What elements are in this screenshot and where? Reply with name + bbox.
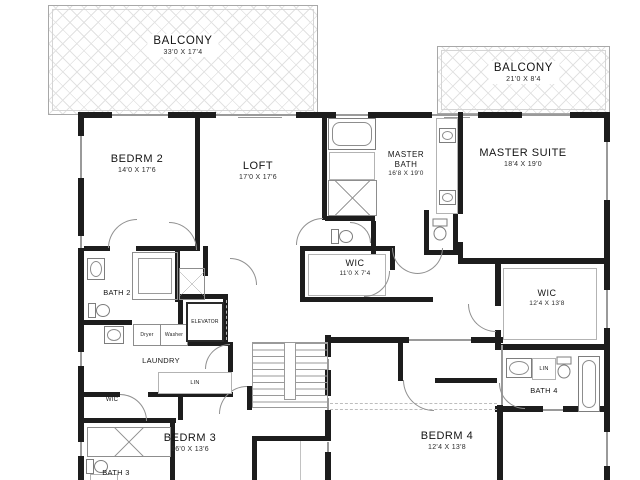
wall bbox=[495, 258, 501, 306]
bathtub bbox=[578, 356, 600, 412]
room-name: BEDRM 4 bbox=[421, 430, 473, 443]
room-dims: 21'0 X 8'4 bbox=[494, 76, 553, 83]
room-name: BALCONY bbox=[494, 62, 553, 74]
linen-label: LIN bbox=[190, 380, 199, 386]
room-dims: 16'8 X 19'0 bbox=[380, 170, 432, 178]
stair-rail bbox=[284, 342, 296, 400]
shower bbox=[328, 180, 377, 216]
room-label-wic-small: WIC bbox=[106, 397, 118, 403]
window bbox=[606, 142, 608, 200]
wall bbox=[322, 112, 327, 220]
wall bbox=[84, 246, 110, 251]
wall bbox=[495, 344, 605, 350]
room-name: WIC bbox=[339, 258, 370, 269]
wall bbox=[300, 297, 433, 302]
linen-closet: LIN bbox=[532, 358, 556, 380]
wall bbox=[300, 246, 305, 302]
window bbox=[432, 114, 478, 116]
room-name: BEDRM 3 bbox=[164, 432, 216, 445]
wall bbox=[471, 337, 503, 343]
room-label-bedrm4: BEDRM 4 12'4 X 13'8 bbox=[421, 430, 473, 453]
ceiling-break-line bbox=[330, 409, 497, 410]
sink bbox=[439, 128, 456, 143]
room-name: MASTER BATH bbox=[380, 150, 432, 169]
balcony-top-right: BALCONY 21'0 X 8'4 bbox=[437, 46, 610, 114]
washer-label: Washer bbox=[165, 332, 183, 338]
door-arc bbox=[468, 304, 496, 332]
room-dims: 12'4 X 13'8 bbox=[529, 300, 564, 308]
bathtub bbox=[328, 118, 376, 150]
room-dims: 33'0 X 17'4 bbox=[153, 49, 212, 56]
linen-label: LIN bbox=[539, 366, 548, 372]
door-arc bbox=[108, 219, 137, 248]
room-name: LOFT bbox=[239, 160, 277, 173]
wall-line bbox=[300, 441, 301, 480]
room-label-balcony-left: BALCONY 33'0 X 17'4 bbox=[147, 34, 218, 57]
window bbox=[409, 339, 471, 341]
elevator-label: ELEVATOR bbox=[191, 319, 218, 325]
balcony-top-left: BALCONY 33'0 X 17'4 bbox=[48, 5, 318, 115]
window bbox=[80, 352, 82, 366]
window bbox=[216, 114, 296, 116]
toilet bbox=[88, 302, 110, 317]
room-label-bath4: BATH 4 bbox=[530, 386, 558, 395]
window bbox=[522, 114, 570, 116]
window bbox=[80, 236, 82, 248]
wall bbox=[252, 436, 331, 441]
room-dims: 11'0 X 7'4 bbox=[339, 270, 370, 278]
closet-outline bbox=[329, 152, 375, 180]
sink bbox=[439, 190, 456, 205]
window bbox=[112, 114, 168, 116]
room-dims: 17'0 X 17'6 bbox=[239, 174, 277, 182]
window bbox=[606, 290, 608, 328]
room-label-loft: LOFT 17'0 X 17'6 bbox=[239, 160, 277, 183]
sink bbox=[87, 258, 105, 280]
shower bbox=[132, 252, 178, 300]
wall bbox=[300, 246, 395, 251]
wall bbox=[195, 112, 200, 251]
toilet bbox=[558, 357, 573, 379]
wall bbox=[325, 216, 375, 221]
linen-closet: LIN bbox=[158, 372, 232, 394]
shower bbox=[179, 268, 205, 300]
door-arc bbox=[350, 222, 371, 243]
window bbox=[543, 409, 563, 411]
wall bbox=[325, 410, 331, 440]
wall bbox=[497, 405, 503, 480]
wall bbox=[604, 112, 610, 142]
room-label-bath2: BATH 2 bbox=[103, 288, 131, 297]
wall bbox=[168, 112, 216, 118]
room-name: MASTER SUITE bbox=[479, 147, 566, 160]
elevator-car: ELEVATOR bbox=[186, 302, 224, 342]
room-name: BEDRM 2 bbox=[111, 153, 163, 166]
sink bbox=[506, 358, 532, 378]
wall bbox=[478, 112, 522, 118]
wall bbox=[78, 112, 84, 136]
door-arc bbox=[120, 394, 147, 421]
window bbox=[80, 136, 82, 178]
wall bbox=[78, 456, 84, 480]
shower bbox=[87, 427, 171, 457]
wall bbox=[78, 178, 84, 236]
window bbox=[336, 114, 368, 116]
room-label-bath3: BATH 3 bbox=[102, 468, 130, 477]
floor-plan: BALCONY 33'0 X 17'4 BALCONY 21'0 X 8'4 bbox=[0, 0, 640, 480]
room-dims: 12'4 X 13'8 bbox=[421, 444, 473, 452]
room-label-wic-right: WIC 12'4 X 13'8 bbox=[529, 288, 564, 308]
wall bbox=[460, 258, 495, 264]
wall bbox=[84, 320, 132, 325]
toilet bbox=[434, 219, 449, 241]
door-arc bbox=[417, 248, 443, 274]
window bbox=[606, 432, 608, 466]
door-arc bbox=[403, 380, 434, 411]
wall bbox=[458, 112, 463, 214]
wall bbox=[495, 258, 605, 264]
room-name: WIC bbox=[529, 288, 564, 299]
wall bbox=[78, 248, 84, 352]
door-arc bbox=[205, 344, 230, 369]
window bbox=[80, 442, 82, 456]
room-dims: 16'0 X 13'6 bbox=[164, 446, 216, 454]
wall bbox=[252, 441, 257, 480]
dryer-label: Dryer bbox=[140, 332, 153, 338]
door-arc bbox=[392, 248, 418, 274]
room-label-master-bath: MASTER BATH 16'8 X 19'0 bbox=[380, 150, 432, 178]
room-label-bedrm3: BEDRM 3 16'0 X 13'6 bbox=[164, 432, 216, 455]
wall bbox=[178, 397, 183, 420]
wall bbox=[604, 200, 610, 290]
sliding-door bbox=[238, 117, 282, 118]
door-arc bbox=[169, 222, 197, 250]
dryer-box: Dryer bbox=[133, 324, 161, 346]
room-label-wic-center: WIC 11'0 X 7'4 bbox=[339, 258, 370, 278]
window bbox=[327, 442, 329, 452]
room-dims: 14'0 X 17'6 bbox=[111, 167, 163, 175]
wall bbox=[325, 452, 331, 480]
elevator-door-line bbox=[226, 300, 227, 340]
room-label-master-suite: MASTER SUITE 18'4 X 19'0 bbox=[479, 147, 566, 170]
wall bbox=[604, 466, 610, 480]
wall bbox=[398, 343, 403, 381]
wall bbox=[368, 112, 432, 118]
door-arc bbox=[296, 218, 323, 245]
washer-box: Washer bbox=[160, 324, 188, 346]
room-label-laundry: LAUNDRY bbox=[142, 356, 180, 365]
wall bbox=[453, 210, 458, 254]
wall bbox=[78, 366, 84, 442]
wall bbox=[435, 378, 497, 383]
room-dims: 18'4 X 19'0 bbox=[479, 161, 566, 169]
room-label-bedrm2: BEDRM 2 14'0 X 17'6 bbox=[111, 153, 163, 176]
room-name: BALCONY bbox=[153, 35, 212, 47]
room-label-balcony-right: BALCONY 21'0 X 8'4 bbox=[488, 61, 559, 84]
door-arc bbox=[230, 258, 257, 285]
laundry-sink bbox=[104, 326, 124, 344]
